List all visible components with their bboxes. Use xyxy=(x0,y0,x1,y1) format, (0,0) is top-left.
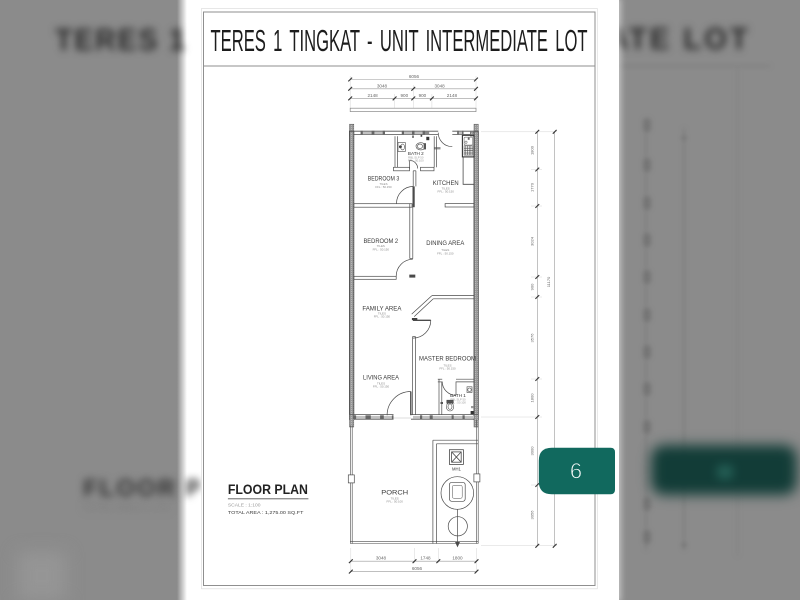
svg-text:FFL : 50.150: FFL : 50.150 xyxy=(437,251,454,255)
svg-text:3024: 3024 xyxy=(530,236,535,246)
svg-text:3056: 3056 xyxy=(530,510,535,520)
svg-text:1748: 1748 xyxy=(420,555,431,560)
svg-text:3048: 3048 xyxy=(377,83,388,88)
svg-text:3000: 3000 xyxy=(530,446,535,456)
svg-text:11170: 11170 xyxy=(546,276,551,287)
svg-text:TOTAL AREA : 1,275.00 SQ.FT: TOTAL AREA : 1,275.00 SQ.FT xyxy=(228,510,304,516)
svg-text:SCALE : 1:100: SCALE : 1:100 xyxy=(228,502,261,507)
svg-text:3576: 3576 xyxy=(530,333,535,343)
svg-text:900: 900 xyxy=(419,93,427,98)
svg-text:DINING AREA: DINING AREA xyxy=(426,240,465,247)
svg-text:FFL : 50.150: FFL : 50.150 xyxy=(373,247,390,251)
svg-text:FFL : 50.100: FFL : 50.100 xyxy=(387,500,404,504)
svg-text:2148: 2148 xyxy=(367,93,378,98)
svg-text:FFL : 50.150: FFL : 50.150 xyxy=(438,190,455,194)
svg-text:3048: 3048 xyxy=(434,83,445,88)
svg-text:1800: 1800 xyxy=(530,393,535,403)
svg-text:3048: 3048 xyxy=(376,555,387,560)
svg-text:TERES 1 TINGKAT - UNIT INTERME: TERES 1 TINGKAT - UNIT INTERMEDIATE LOT xyxy=(211,23,588,58)
svg-text:FFL : 50.100: FFL : 50.100 xyxy=(408,159,424,163)
svg-text:FFL : 50.150: FFL : 50.150 xyxy=(375,185,392,189)
svg-text:FFL : 50.150: FFL : 50.150 xyxy=(373,385,390,389)
svg-text:6: 6 xyxy=(570,459,582,484)
svg-text:1800: 1800 xyxy=(530,145,535,155)
svg-text:MH1: MH1 xyxy=(452,467,462,472)
svg-text:900: 900 xyxy=(530,283,535,290)
svg-text:1800: 1800 xyxy=(452,555,463,560)
svg-text:6056: 6056 xyxy=(409,74,420,79)
svg-text:1770: 1770 xyxy=(530,182,535,192)
svg-text:2148: 2148 xyxy=(447,93,458,98)
svg-text:MASTER BEDROOM: MASTER BEDROOM xyxy=(419,355,476,362)
svg-text:LIVING AREA: LIVING AREA xyxy=(363,374,400,381)
svg-text:FFL : 50.150: FFL : 50.150 xyxy=(374,315,391,319)
svg-text:900: 900 xyxy=(400,93,408,98)
svg-text:FLOOR PLAN: FLOOR PLAN xyxy=(228,482,308,498)
svg-text:FFL : 50.150: FFL : 50.150 xyxy=(439,367,456,371)
svg-text:6056: 6056 xyxy=(412,566,423,571)
